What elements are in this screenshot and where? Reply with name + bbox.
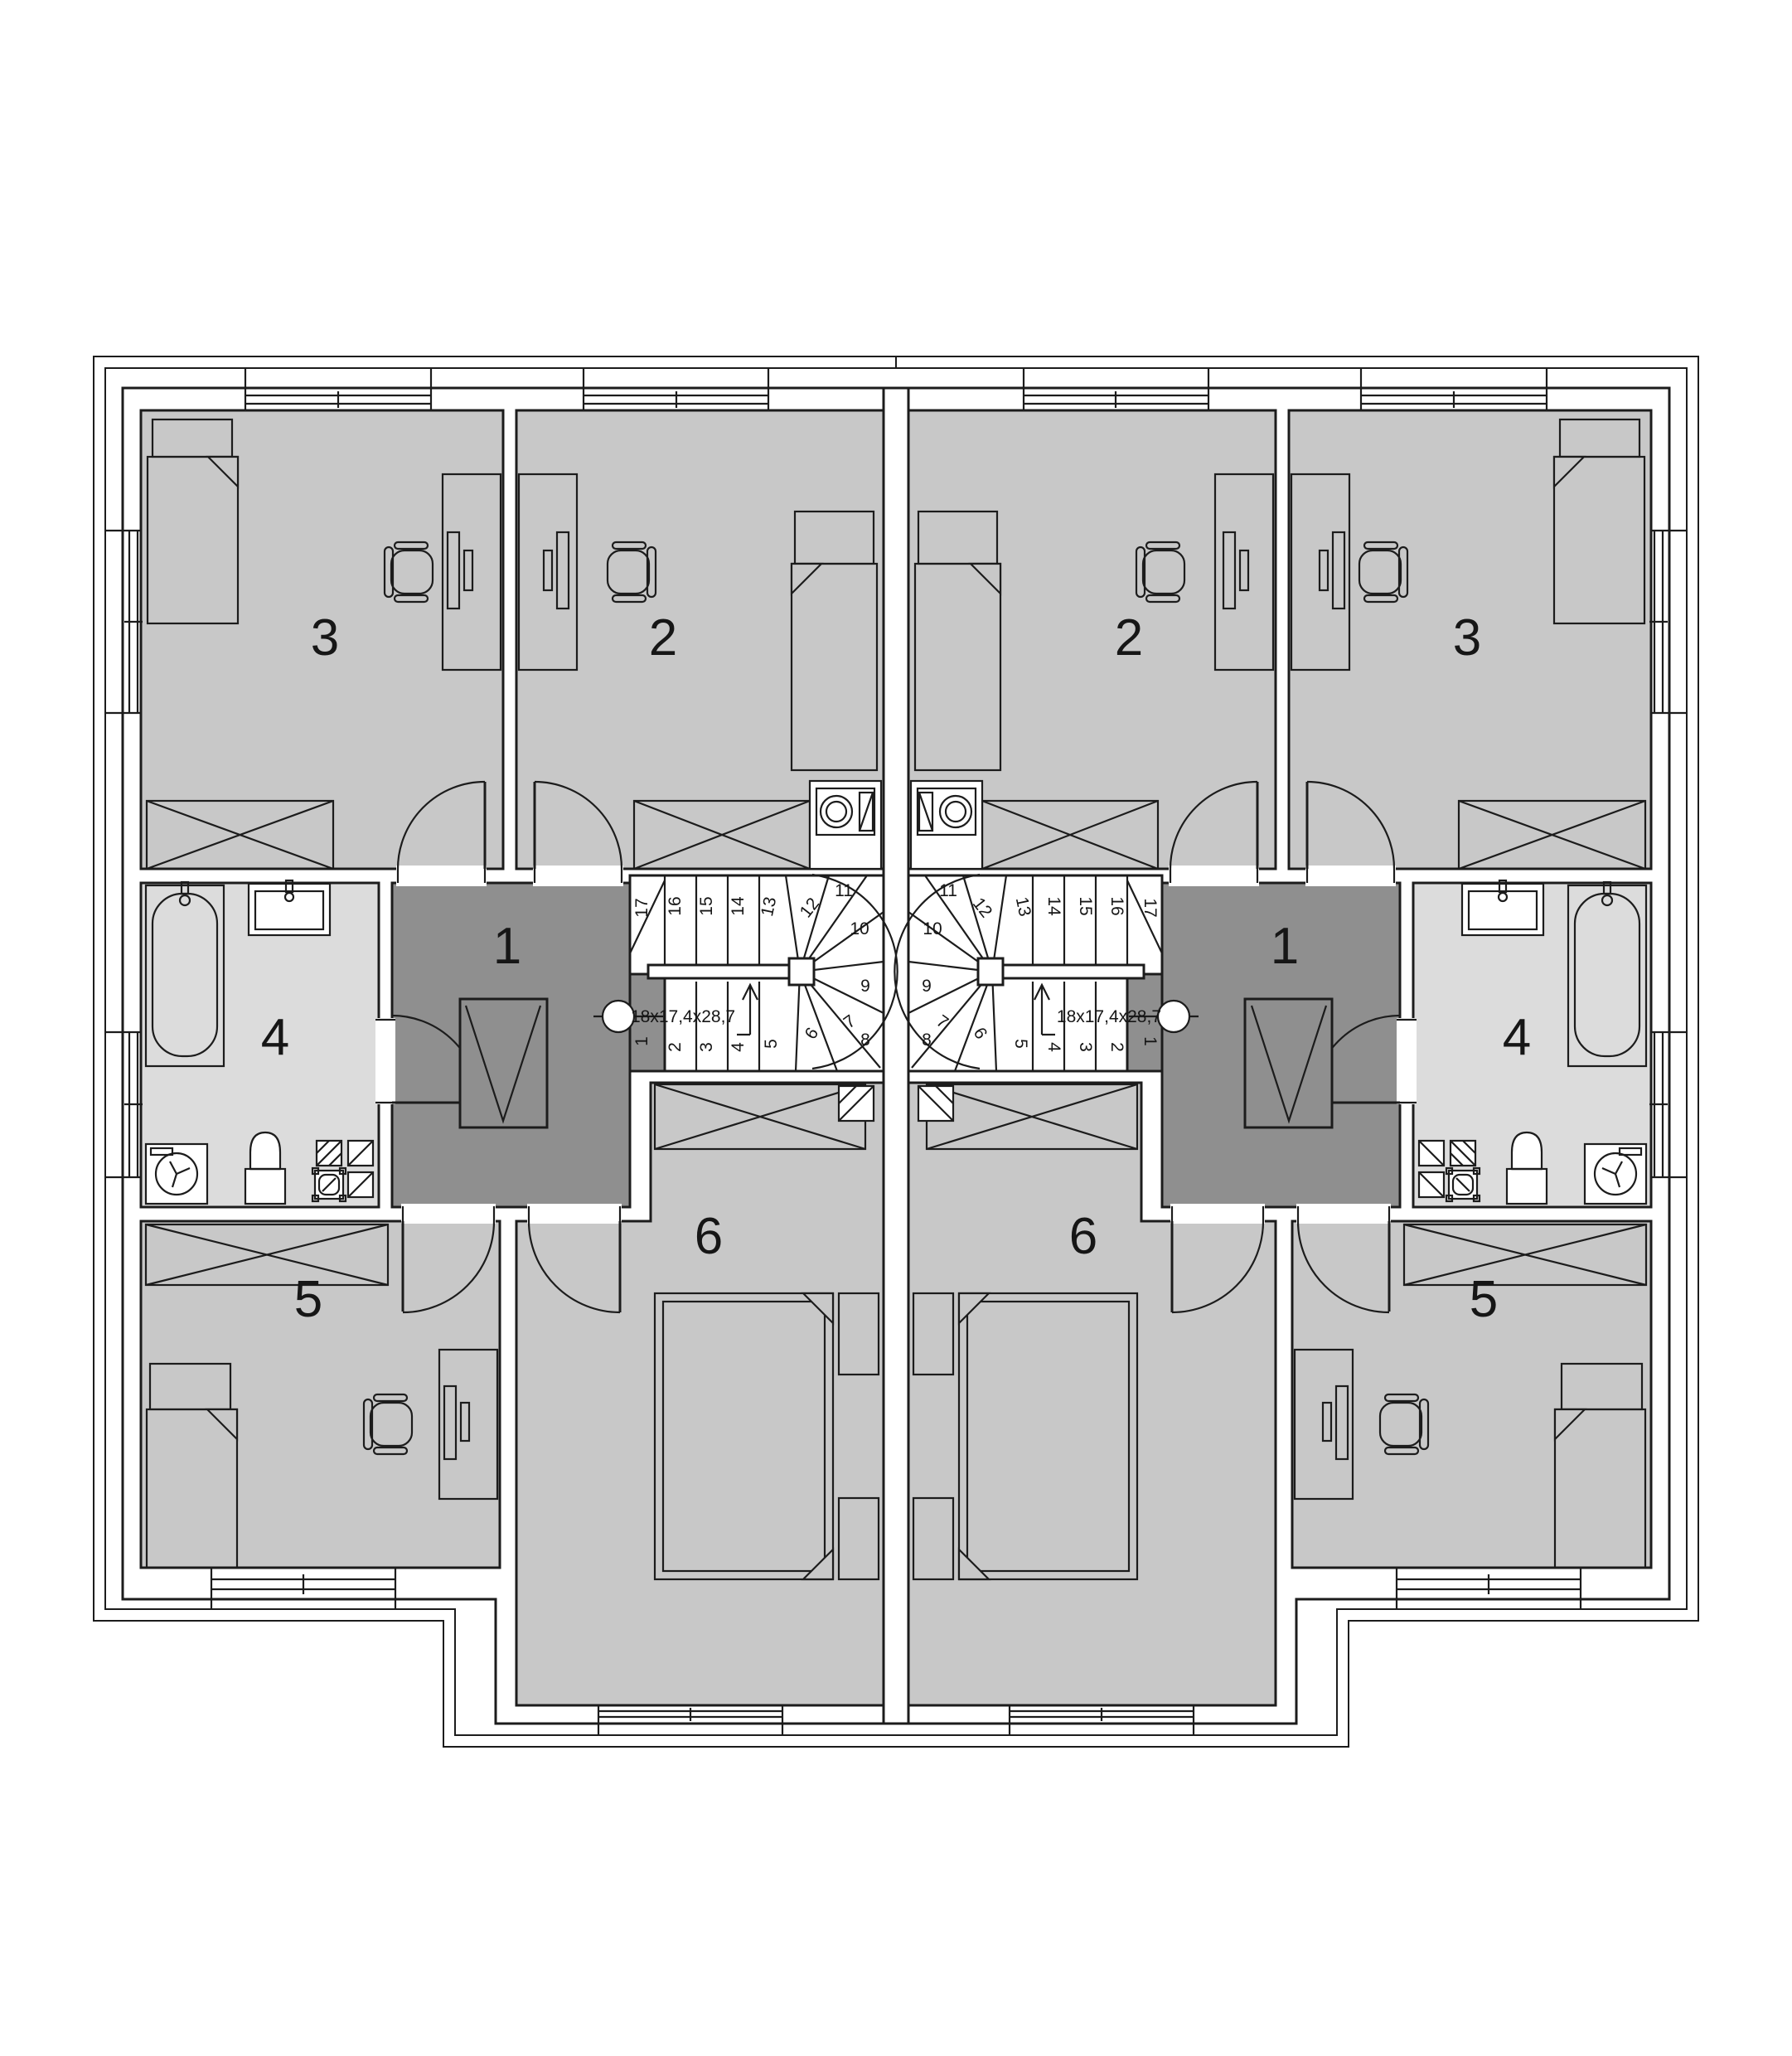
stair-step-number: 3 (697, 1042, 716, 1052)
stair-step-number: 14 (729, 896, 748, 916)
toilet-icon (245, 1132, 285, 1204)
washbasin-unit-icon (810, 781, 881, 869)
stair-step-number: 8 (922, 1030, 932, 1050)
room-number-label: 4 (1503, 1009, 1531, 1066)
room-number-label: 6 (1069, 1208, 1097, 1265)
stair-step-number: 11 (939, 881, 957, 900)
stair-step-number: 17 (632, 898, 651, 917)
room-number-label: 1 (493, 918, 521, 975)
room-number-label: 5 (1470, 1271, 1498, 1328)
stair-step-number: 4 (729, 1042, 748, 1052)
room-number-label: 3 (1453, 609, 1481, 667)
stair-step-number: 1 (1141, 1036, 1160, 1046)
stair-step-number: 16 (666, 896, 685, 915)
stair-step-number: 11 (835, 881, 853, 900)
stair-step-number: 1 (632, 1036, 651, 1046)
stair-handrail (648, 965, 789, 978)
stair-step-number: 9 (860, 977, 870, 996)
stair-step-number: 13 (758, 895, 780, 919)
stair-step-number: 5 (762, 1039, 781, 1049)
room-number-label: 5 (294, 1271, 322, 1328)
stair-step-number: 9 (922, 977, 932, 996)
stair-step-number: 15 (697, 896, 716, 915)
stair-step-number: 13 (1012, 895, 1034, 919)
stair-step-number: 8 (860, 1030, 870, 1050)
stair-step-number: 2 (666, 1042, 685, 1052)
stair-step-number: 2 (1107, 1042, 1126, 1052)
stair-step-number: 17 (1141, 898, 1160, 917)
room-number-label: 2 (1115, 609, 1143, 667)
room-number-label: 3 (311, 609, 339, 667)
stair-step-number: 16 (1107, 896, 1126, 915)
stair-dimension-label: 18x17,4x28,7 (631, 1007, 735, 1026)
room-number-label: 4 (261, 1009, 289, 1066)
floor-plan-page: 3322114455661122334455667788991010111112… (0, 0, 1792, 2056)
room-number-label: 1 (1271, 918, 1299, 975)
stair-section-marker (603, 1001, 634, 1032)
stair-step-number: 10 (923, 919, 942, 938)
stair-step-number: 5 (1011, 1039, 1030, 1049)
room-number-label: 6 (695, 1208, 723, 1265)
hall-closet-icon (460, 999, 547, 1127)
stair-step-number: 14 (1044, 896, 1063, 916)
floor-plan-canvas: 3322114455661122334455667788991010111112… (0, 0, 1792, 2056)
stair-step-number: 15 (1076, 896, 1095, 915)
room-number-label: 2 (649, 609, 677, 667)
stair-step-number: 4 (1044, 1042, 1063, 1052)
stair-step-number: 10 (850, 919, 869, 938)
sink-icon (249, 880, 330, 935)
washing-machine-icon (146, 1144, 207, 1204)
stair-step-number: 3 (1076, 1042, 1095, 1052)
stair-dimension-label: 18x17,4x28,7 (1057, 1007, 1161, 1026)
